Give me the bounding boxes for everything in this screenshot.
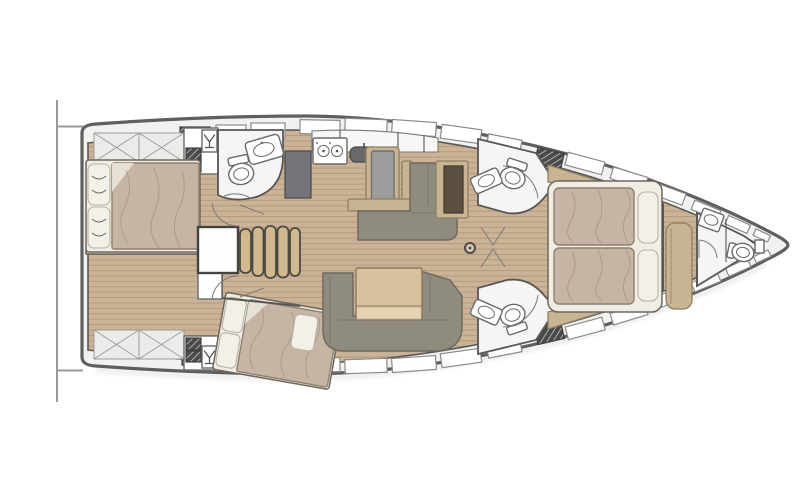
saloon-table xyxy=(356,268,422,320)
pillow xyxy=(88,164,110,205)
floorplan-svg xyxy=(0,0,810,500)
companionway-steps xyxy=(240,226,300,278)
aft-cabin-starboard-bed xyxy=(86,160,200,252)
pillow xyxy=(638,192,658,243)
deck-window xyxy=(392,355,437,372)
companionway xyxy=(198,226,300,278)
deck-window xyxy=(345,358,387,373)
chart-desk xyxy=(436,161,468,218)
galley-tall-cabinet xyxy=(285,151,311,198)
pillow xyxy=(638,250,658,301)
swim-platform-transom xyxy=(57,100,83,402)
pillow xyxy=(88,207,110,248)
bench-seat xyxy=(666,223,692,309)
sofa-cushion xyxy=(290,313,318,351)
bow-locker xyxy=(755,240,764,253)
companionway-landing xyxy=(198,227,238,273)
yacht-floorplan-canvas xyxy=(0,0,810,500)
stove xyxy=(313,138,347,164)
aft-port-locker xyxy=(198,273,222,299)
